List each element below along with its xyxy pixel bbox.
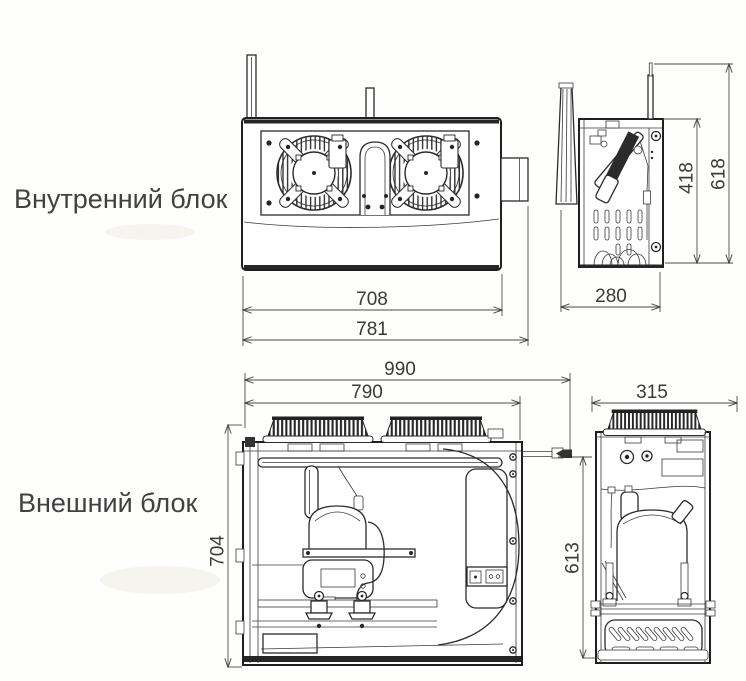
compressor — [309, 506, 366, 553]
dim-label-613: 613 — [563, 542, 584, 574]
dim-internal-side-body-height: 418 — [663, 119, 701, 263]
dim-label-418: 418 — [677, 162, 698, 194]
internal-unit-label: Внутренний блок — [14, 184, 228, 214]
external-unit-front-view — [236, 417, 563, 666]
dim-label-280: 280 — [595, 286, 627, 307]
compressor — [617, 510, 687, 601]
dim-external-side-height: 613 — [556, 450, 598, 659]
wire-plug — [354, 496, 363, 510]
dim-external-side-depth: 315 — [592, 382, 737, 412]
mounting-rod — [366, 88, 374, 121]
dim-label-704: 704 — [208, 535, 229, 567]
center-channel — [360, 142, 390, 215]
dim-label-781: 781 — [356, 319, 388, 340]
internal-unit-side-view — [556, 63, 663, 268]
technical-drawing-page: Внутренний блок Внешний блок 708 — [0, 0, 746, 681]
dim-label-618: 618 — [709, 158, 730, 190]
terminal-box — [263, 634, 317, 653]
external-unit-label: Внешний блок — [18, 488, 197, 518]
drawing-canvas: Внутренний блок Внешний блок 708 — [0, 0, 746, 681]
sensor-rod — [648, 75, 653, 119]
lower-rail — [258, 600, 437, 607]
dim-label-790: 790 — [351, 382, 383, 403]
internal-unit-front-view — [242, 55, 528, 270]
dim-label-315: 315 — [636, 382, 668, 403]
external-unit-side-view — [591, 410, 715, 664]
side-duct — [501, 158, 528, 201]
dim-label-990: 990 — [384, 359, 416, 380]
dim-label-708: 708 — [356, 289, 388, 310]
